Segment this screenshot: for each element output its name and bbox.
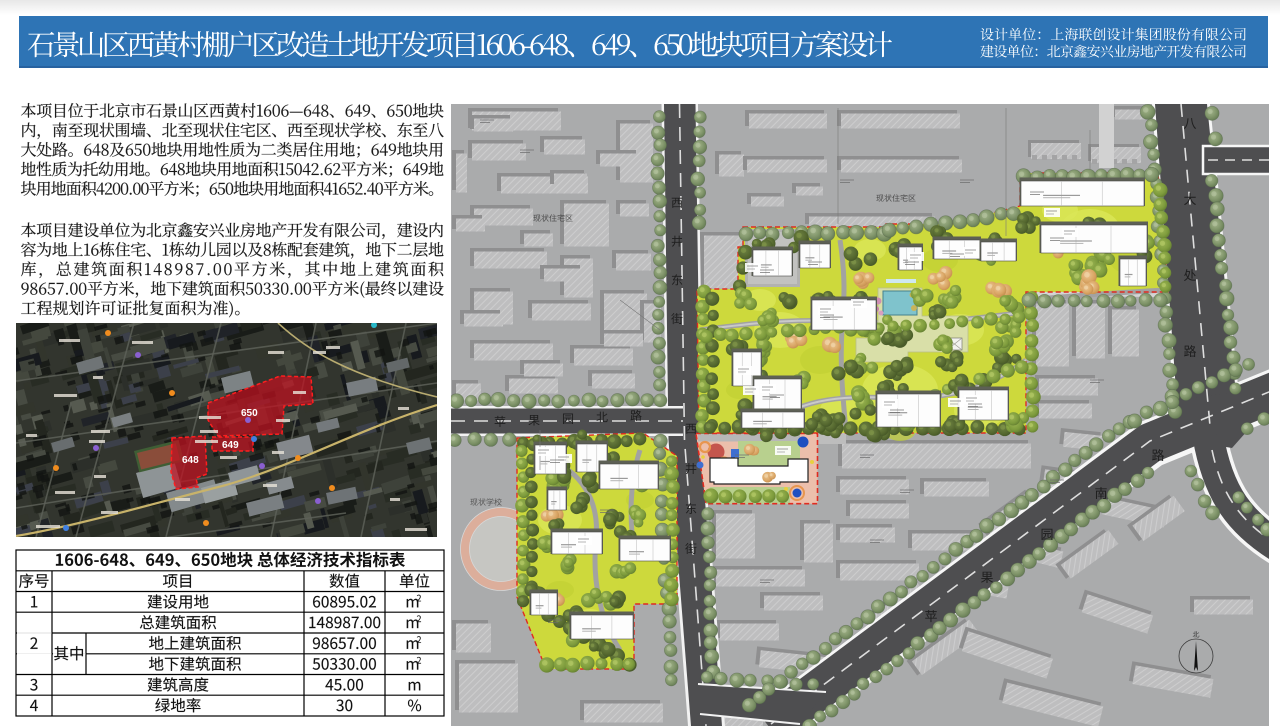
svg-text:650: 650 xyxy=(241,408,258,419)
svg-text:649: 649 xyxy=(222,440,239,451)
svg-text:648: 648 xyxy=(182,455,199,466)
